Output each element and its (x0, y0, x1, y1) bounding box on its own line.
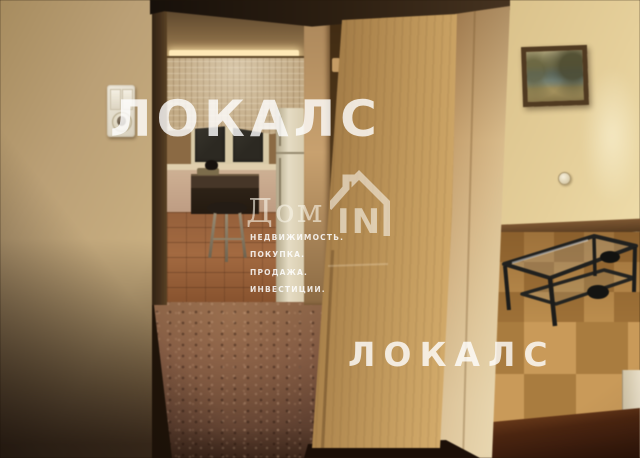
kitchen-table (191, 174, 259, 188)
tagline-line: ПРОДАЖА. (250, 264, 344, 281)
hallway-left-wall (0, 0, 152, 458)
watermark-logo-text: Дом (246, 194, 324, 227)
tagline-line: НЕДВИЖИМОСТЬ. (250, 229, 344, 246)
tagline-line: ИНВЕСТИЦИИ. (250, 281, 344, 298)
tagline-line: ПОКУПКА. (250, 246, 344, 263)
stool-seat (207, 202, 247, 214)
window-light-glow (582, 66, 640, 206)
pot-on-table (205, 160, 218, 170)
watermark-tagline: НЕДВИЖИМОСТЬ. ПОКУПКА. ПРОДАЖА. ИНВЕСТИЦ… (250, 229, 344, 298)
glass-coffee-table (498, 230, 640, 336)
house-logo-icon: IN (330, 170, 390, 236)
frame-facet-line (462, 6, 476, 458)
living-room-view (486, 0, 640, 458)
framed-painting (521, 45, 589, 107)
watermark-brand-top: ЛОКАЛС (110, 94, 382, 144)
photo-frame: ЛОКАЛС Дом IN НЕДВИЖИМОСТЬ. ПОКУПКА. ПРО… (0, 0, 640, 458)
wall-outlet (558, 172, 571, 185)
stool-brace (213, 238, 243, 240)
watermark-brand-bottom: ЛОКАЛС (348, 338, 556, 371)
kitchen-doorjamb-left (150, 0, 167, 305)
freezer-door-seam (276, 152, 304, 154)
